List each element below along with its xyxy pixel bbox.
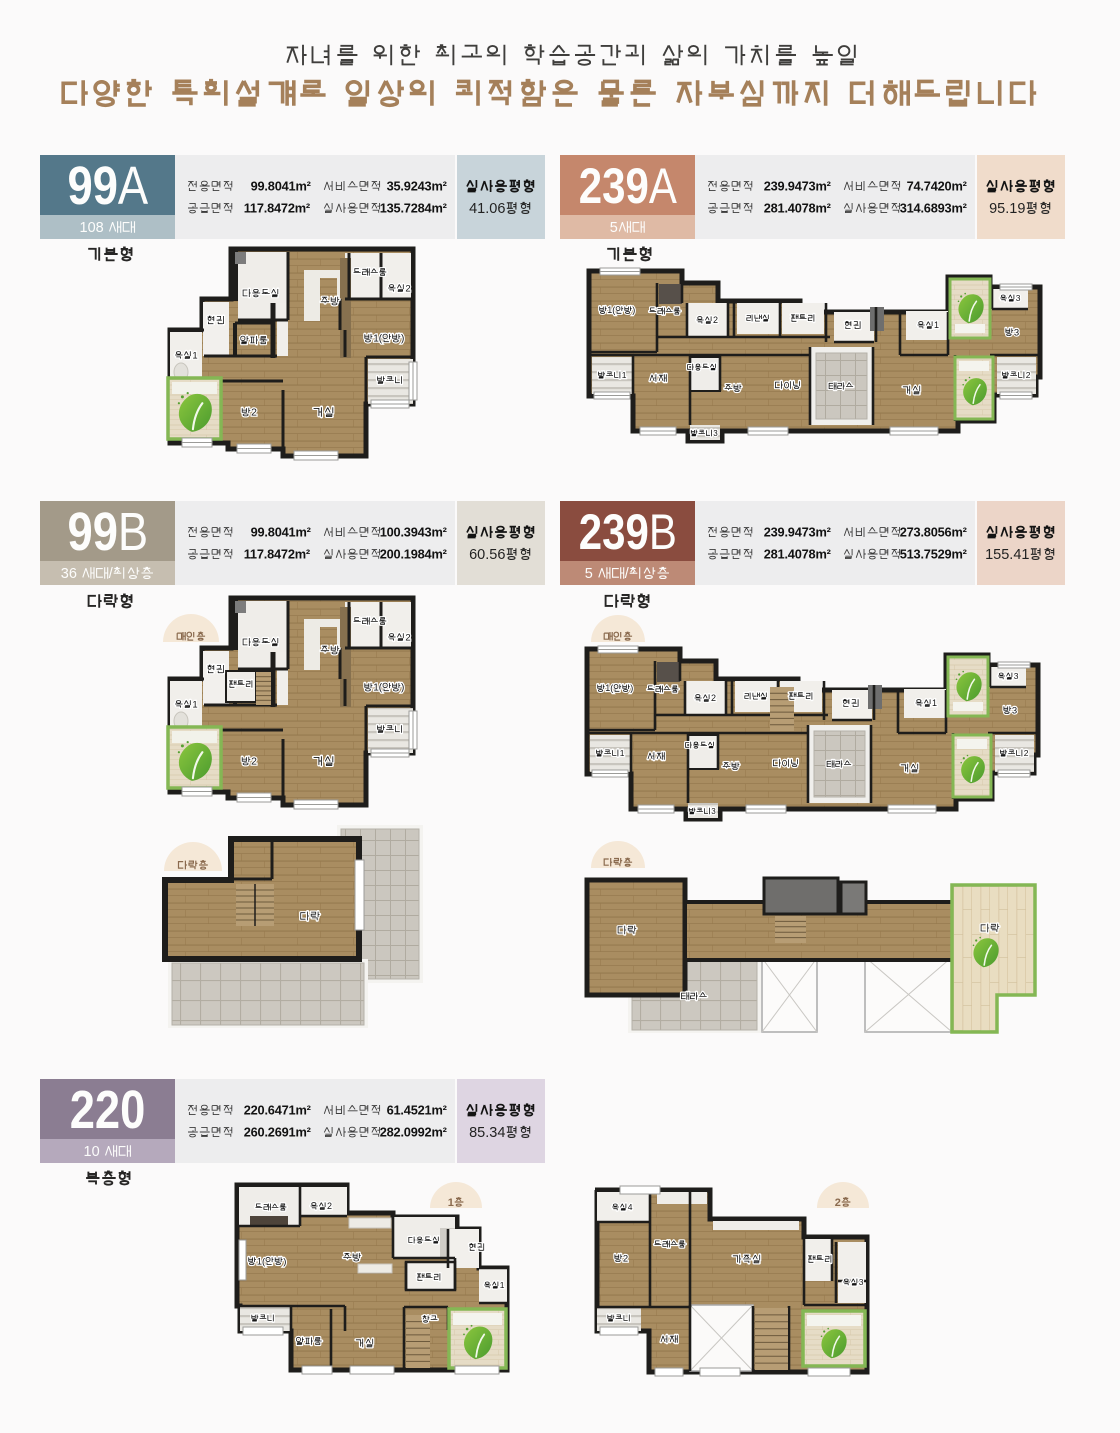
svg-text:3: 3 xyxy=(713,429,718,438)
svg-text:100.3943m²: 100.3943m² xyxy=(380,525,447,540)
svg-text:108: 108 xyxy=(80,220,104,236)
svg-text:273.8056m²: 273.8056m² xyxy=(900,525,967,540)
svg-text:99: 99 xyxy=(68,501,118,562)
svg-text:3: 3 xyxy=(1014,327,1019,338)
svg-text:220: 220 xyxy=(70,1079,146,1140)
svg-text:2: 2 xyxy=(835,1197,841,1209)
svg-text:3: 3 xyxy=(1012,705,1017,716)
svg-text:B: B xyxy=(649,503,677,559)
svg-text:1(: 1( xyxy=(373,683,383,694)
svg-text:61.4521m²: 61.4521m² xyxy=(387,1103,447,1118)
svg-text:74.7420m²: 74.7420m² xyxy=(907,179,967,194)
svg-text:35.9243m²: 35.9243m² xyxy=(387,179,447,194)
svg-text:117.8472m²: 117.8472m² xyxy=(244,201,310,216)
svg-text:239.9473m²: 239.9473m² xyxy=(764,179,831,194)
svg-text:2: 2 xyxy=(623,1253,628,1264)
svg-text:): ) xyxy=(401,334,404,345)
svg-text:3: 3 xyxy=(1016,293,1021,303)
svg-text:1: 1 xyxy=(192,350,197,361)
svg-text:36: 36 xyxy=(61,566,77,582)
svg-text:1: 1 xyxy=(448,1197,454,1209)
svg-text:99: 99 xyxy=(68,155,118,216)
svg-text:5: 5 xyxy=(585,566,593,582)
svg-text:2: 2 xyxy=(1026,370,1031,380)
svg-text:): ) xyxy=(630,683,633,693)
svg-text:239: 239 xyxy=(579,157,649,213)
svg-text:513.7529m²: 513.7529m² xyxy=(900,547,967,562)
svg-text:1: 1 xyxy=(500,1280,505,1290)
svg-text:): ) xyxy=(401,683,404,694)
svg-text:3: 3 xyxy=(1014,671,1019,681)
svg-text:10: 10 xyxy=(84,1144,100,1160)
svg-text:1(: 1( xyxy=(605,683,613,693)
svg-text:3: 3 xyxy=(711,807,716,816)
svg-text:85.34: 85.34 xyxy=(469,1125,505,1141)
svg-text:2: 2 xyxy=(405,283,410,294)
svg-text:260.2691m²: 260.2691m² xyxy=(244,1125,311,1140)
svg-text:1(: 1( xyxy=(257,1256,266,1267)
svg-text:135.7284m²: 135.7284m² xyxy=(380,201,447,216)
svg-text:95.19: 95.19 xyxy=(989,201,1025,217)
svg-text:A: A xyxy=(649,157,677,213)
svg-text:1(: 1( xyxy=(607,305,615,315)
svg-text:1: 1 xyxy=(932,698,937,708)
svg-text:314.6893m²: 314.6893m² xyxy=(900,201,967,216)
svg-text:): ) xyxy=(283,1256,286,1267)
svg-text:117.8472m²: 117.8472m² xyxy=(244,547,310,562)
svg-text:99.8041m²: 99.8041m² xyxy=(251,179,311,194)
svg-text:282.0992m²: 282.0992m² xyxy=(380,1125,447,1140)
svg-text:281.4078m²: 281.4078m² xyxy=(764,201,831,216)
svg-text:2: 2 xyxy=(711,693,716,703)
svg-text:200.1984m²: 200.1984m² xyxy=(380,547,447,562)
svg-text:2: 2 xyxy=(327,1201,332,1211)
svg-text:1(: 1( xyxy=(373,334,383,345)
svg-text:2: 2 xyxy=(1024,748,1029,758)
svg-text:B: B xyxy=(118,501,148,562)
svg-text:1: 1 xyxy=(622,370,627,380)
svg-text:1: 1 xyxy=(192,699,197,710)
svg-text:281.4078m²: 281.4078m² xyxy=(764,547,831,562)
svg-text:4: 4 xyxy=(628,1202,633,1212)
svg-text:239.9473m²: 239.9473m² xyxy=(764,525,831,540)
svg-text:5: 5 xyxy=(610,220,618,236)
svg-text:3: 3 xyxy=(859,1277,864,1287)
svg-text:41.06: 41.06 xyxy=(469,201,505,217)
svg-text:2: 2 xyxy=(405,632,410,643)
svg-text:239: 239 xyxy=(579,503,649,559)
svg-text:220.6471m²: 220.6471m² xyxy=(244,1103,311,1118)
svg-text:99.8041m²: 99.8041m² xyxy=(251,525,311,540)
svg-text:2: 2 xyxy=(713,315,718,325)
svg-text:A: A xyxy=(118,155,149,216)
svg-text:155.41: 155.41 xyxy=(985,547,1029,563)
svg-text:2: 2 xyxy=(251,407,257,419)
svg-text:): ) xyxy=(632,305,635,315)
svg-text:1: 1 xyxy=(620,748,625,758)
svg-text:2: 2 xyxy=(251,756,257,768)
svg-text:1: 1 xyxy=(934,320,939,330)
svg-text:60.56: 60.56 xyxy=(469,547,505,563)
